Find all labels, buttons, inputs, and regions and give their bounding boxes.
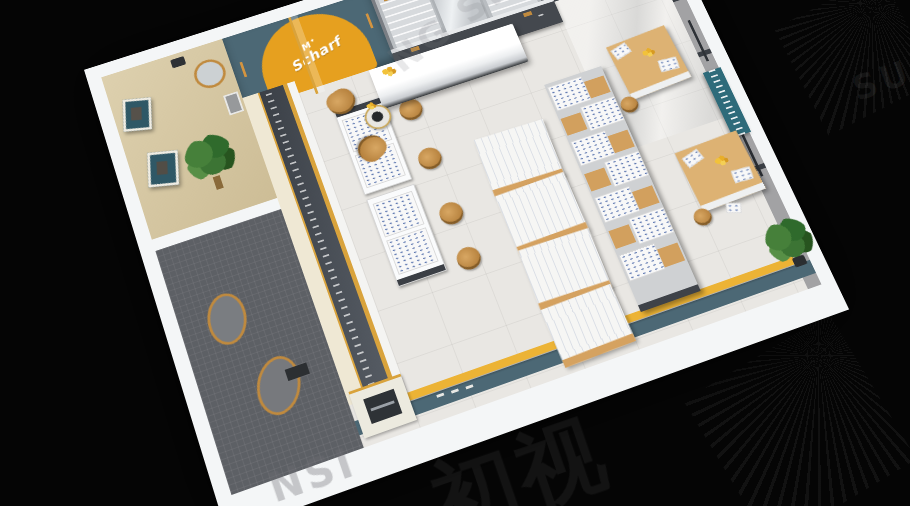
table-tray (370, 110, 385, 123)
floor-card (726, 203, 742, 213)
paper-tray (658, 56, 680, 72)
render-canvas: SU M✦ Scharf (0, 0, 910, 506)
table-flowers (639, 45, 657, 61)
paper-tray (682, 149, 704, 168)
paper-tray (610, 42, 631, 60)
niche-shelf (370, 400, 394, 411)
picture-art (157, 161, 168, 175)
paper-tray (731, 166, 754, 183)
picture-frame (147, 150, 179, 187)
cabinet-end-niche (363, 389, 402, 424)
picture-frame (123, 97, 152, 132)
table-flowers (711, 152, 731, 169)
picture-art (131, 107, 142, 121)
